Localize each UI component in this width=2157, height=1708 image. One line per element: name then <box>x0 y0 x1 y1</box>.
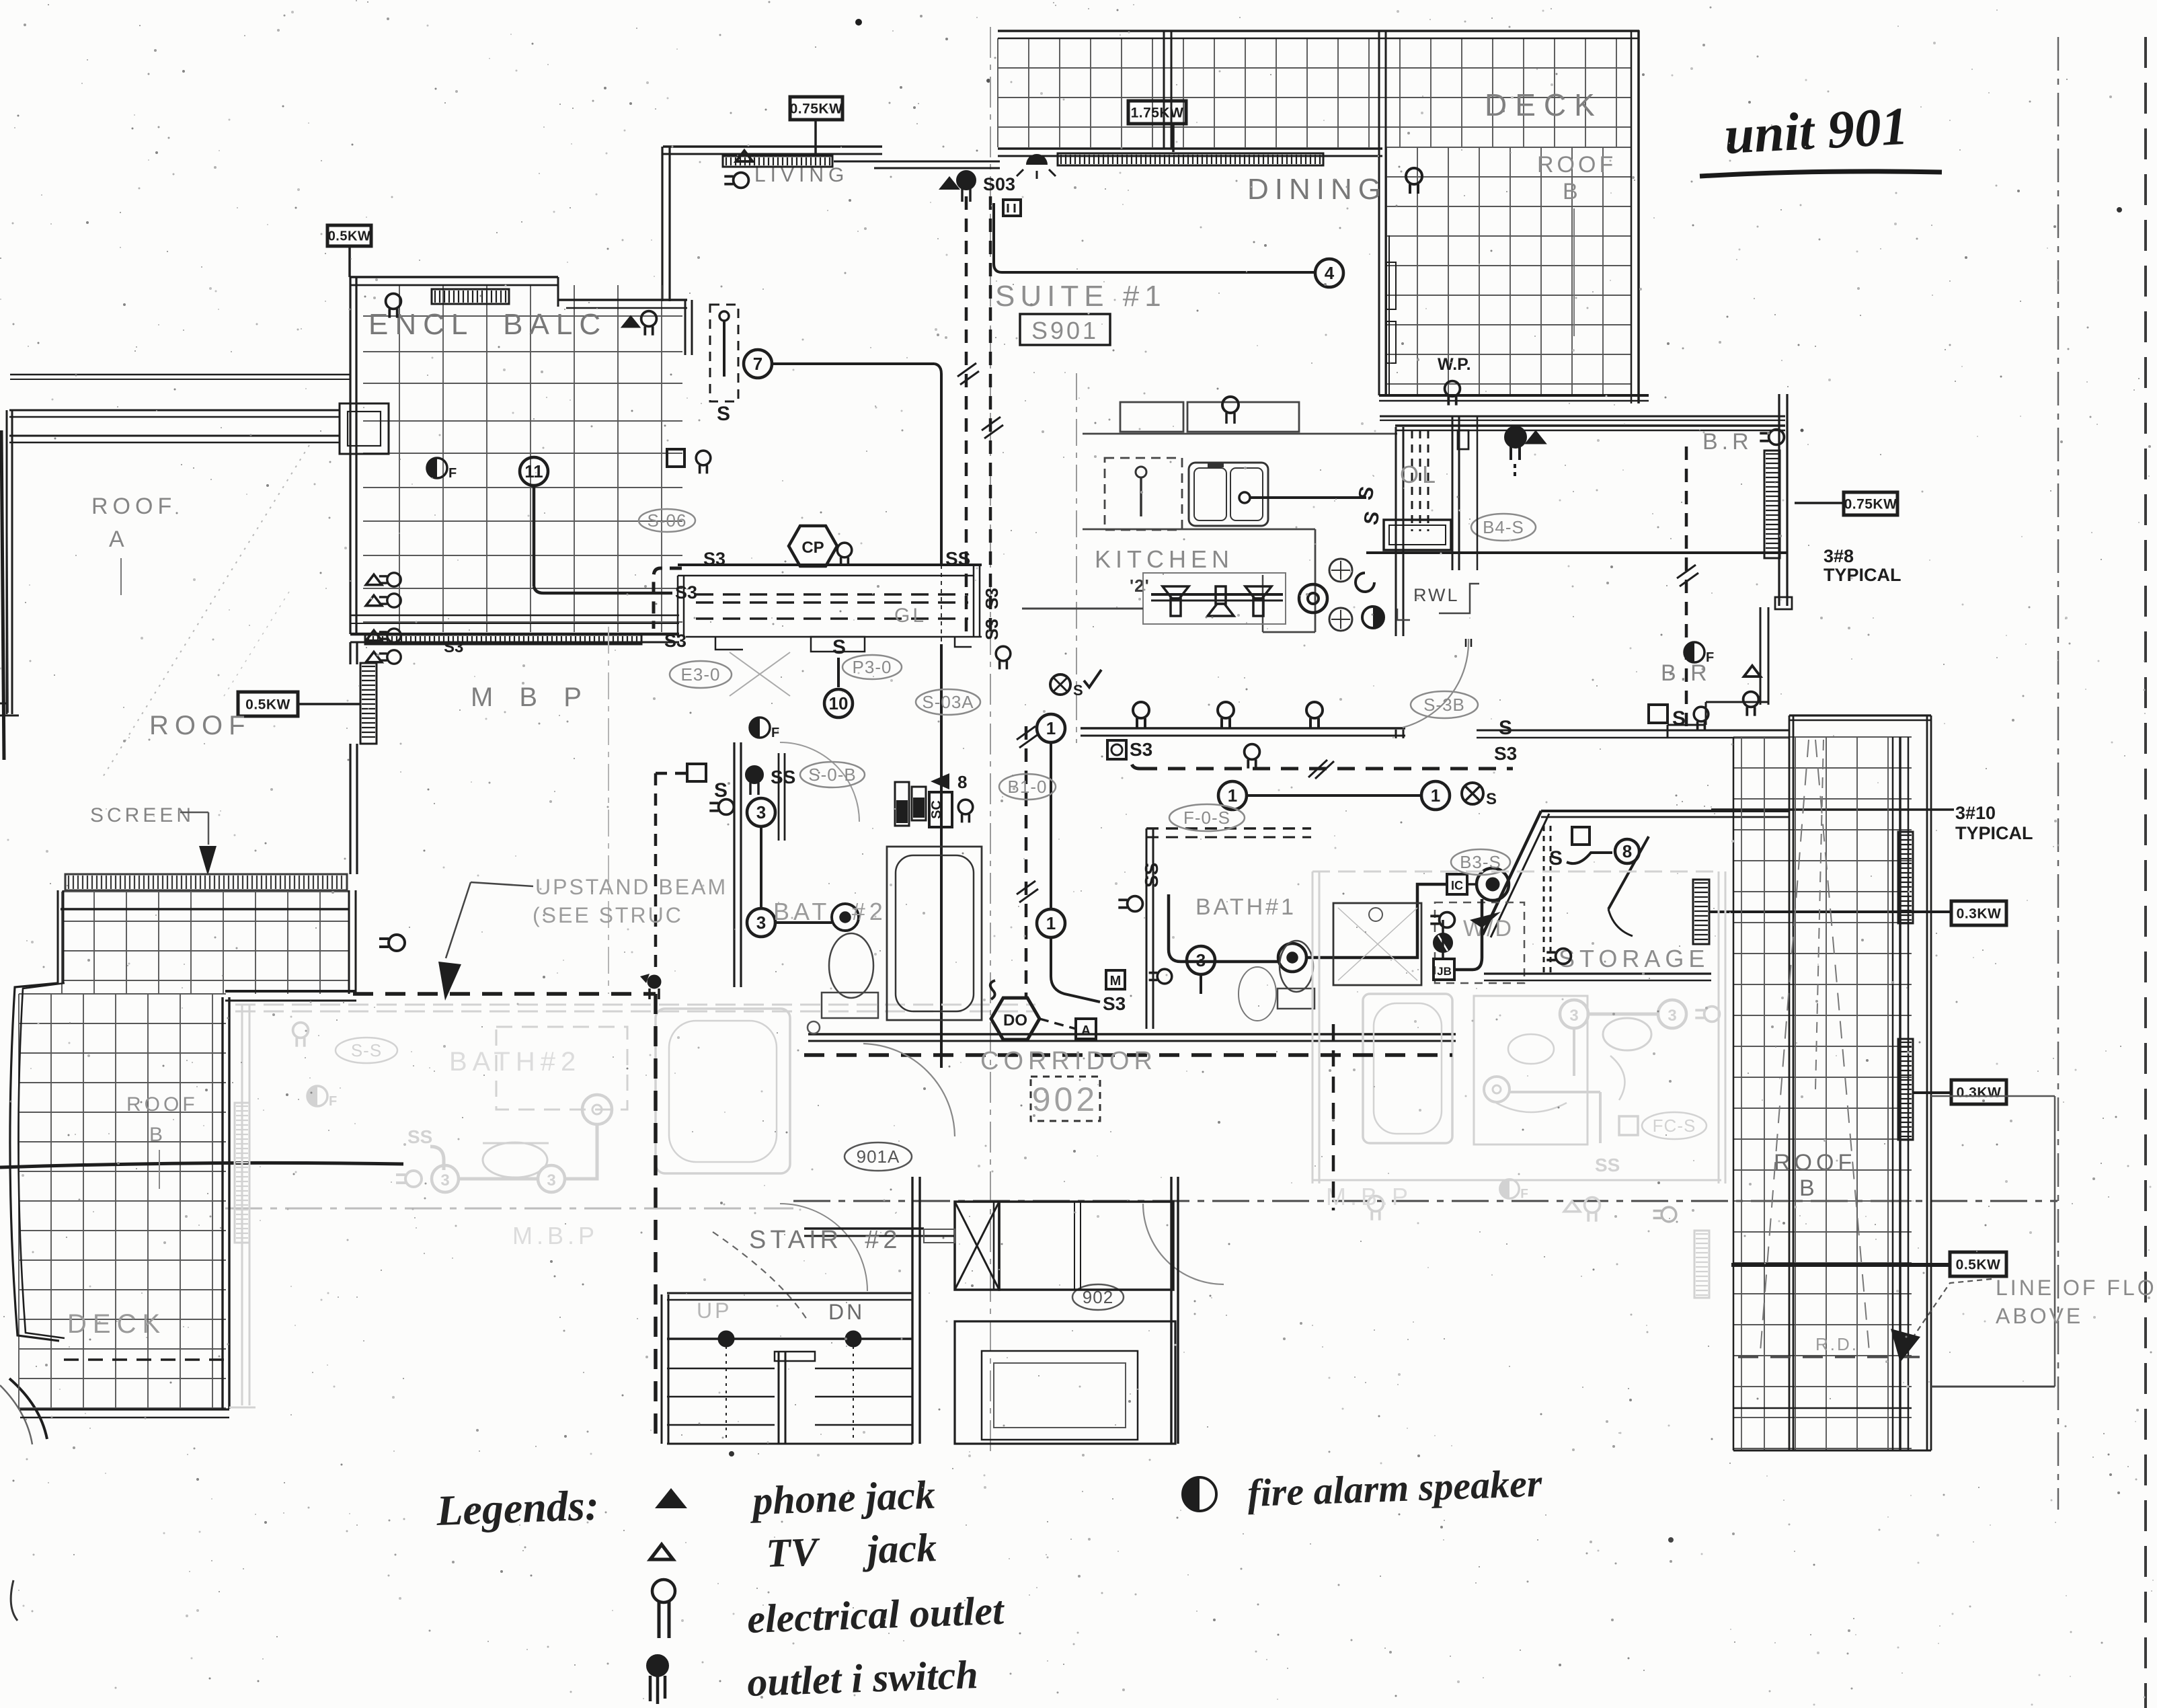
svg-text:IC: IC <box>1451 879 1463 892</box>
svg-text:SS: SS <box>1595 1155 1620 1175</box>
svg-text:S3: S3 <box>1103 993 1126 1014</box>
svg-text:3: 3 <box>756 802 766 822</box>
svg-text:0.5KW: 0.5KW <box>245 697 290 713</box>
svg-text:S: S <box>1073 682 1083 699</box>
svg-text:S: S <box>1486 790 1497 808</box>
svg-text:ENCL BALC: ENCL BALC <box>368 308 607 341</box>
svg-text:ROOF: ROOF <box>91 494 176 519</box>
svg-text:901A: 901A <box>857 1147 900 1167</box>
svg-text:ROOF: ROOF <box>1774 1150 1856 1175</box>
svg-text:S-03A: S-03A <box>922 692 974 712</box>
svg-text:S-3B: S-3B <box>1423 695 1465 715</box>
svg-text:TYPICAL: TYPICAL <box>1823 565 1901 585</box>
svg-text:902: 902 <box>1032 1081 1098 1118</box>
svg-text:0.5KW: 0.5KW <box>1956 1257 2001 1273</box>
svg-text:S3: S3 <box>982 588 1002 609</box>
svg-text:SS: SS <box>771 767 795 787</box>
svg-text:B: B <box>149 1124 163 1146</box>
svg-text:0.3KW: 0.3KW <box>1957 1085 2002 1101</box>
svg-text:M: M <box>1110 974 1122 988</box>
svg-text:11: 11 <box>524 461 543 481</box>
svg-text:BAT #2: BAT #2 <box>773 898 887 925</box>
svg-text:S-06: S-06 <box>648 510 687 531</box>
svg-text:B4-S: B4-S <box>1483 517 1524 537</box>
svg-text:KITCHEN: KITCHEN <box>1095 545 1234 573</box>
svg-text:TV jack: TV jack <box>765 1525 937 1576</box>
svg-text:CP: CP <box>801 539 824 557</box>
svg-text:BATH#1: BATH#1 <box>1195 894 1296 920</box>
svg-text:B3-S: B3-S <box>1460 852 1501 872</box>
svg-text:1: 1 <box>1046 718 1056 738</box>
svg-text:S3: S3 <box>703 549 725 569</box>
svg-text:S3: S3 <box>1130 739 1152 760</box>
svg-text:8: 8 <box>957 772 967 792</box>
svg-text:TYPICAL: TYPICAL <box>1955 823 2033 843</box>
svg-text:S3: S3 <box>1494 743 1517 764</box>
svg-text:B: B <box>1563 179 1578 204</box>
svg-text:SUITE #1: SUITE #1 <box>995 280 1167 313</box>
svg-text:1: 1 <box>1046 913 1056 933</box>
svg-text:ROOF: ROOF <box>1537 152 1616 178</box>
svg-text:0.3KW: 0.3KW <box>1957 906 2002 922</box>
svg-text:S3: S3 <box>444 638 463 656</box>
svg-text:S: S <box>1672 707 1686 730</box>
svg-text:SCREEN: SCREEN <box>90 804 194 826</box>
svg-text:B: B <box>1799 1175 1815 1201</box>
svg-text:UP: UP <box>697 1298 732 1323</box>
svg-text:E3-0: E3-0 <box>681 664 721 685</box>
svg-text:DECK: DECK <box>67 1309 166 1339</box>
svg-text:1: 1 <box>1431 785 1440 806</box>
svg-text:OL: OL <box>1400 461 1439 488</box>
svg-text:ROOF: ROOF <box>149 711 251 740</box>
svg-text:S-S: S-S <box>351 1040 382 1060</box>
svg-text:3: 3 <box>1196 950 1206 970</box>
svg-text:W.P.: W.P. <box>1438 355 1471 374</box>
svg-text:3: 3 <box>756 913 766 933</box>
svg-text:M.B.P: M.B.P <box>512 1222 598 1249</box>
svg-text:P3-0: P3-0 <box>853 657 892 677</box>
svg-text:SS: SS <box>945 548 970 569</box>
svg-text:S3: S3 <box>664 631 687 651</box>
svg-text:LINE OF FLOO: LINE OF FLOO <box>1996 1276 2157 1300</box>
svg-text:SS: SS <box>1141 863 1162 888</box>
svg-text:3: 3 <box>547 1171 555 1190</box>
svg-text:LIVING: LIVING <box>754 164 849 186</box>
svg-text:ABOVE: ABOVE <box>1996 1304 2083 1328</box>
svg-text:SC: SC <box>929 800 944 819</box>
svg-text:S: S <box>717 403 730 425</box>
svg-text:'2': '2' <box>1130 576 1150 596</box>
svg-text:A: A <box>109 527 124 552</box>
svg-text:S3: S3 <box>982 619 1002 640</box>
svg-text:F: F <box>329 1094 337 1109</box>
svg-text:S-0-B: S-0-B <box>808 765 856 785</box>
svg-text:1: 1 <box>1228 785 1237 806</box>
svg-text:S901: S901 <box>1031 317 1099 344</box>
svg-text:F: F <box>1520 1187 1528 1201</box>
svg-text:10: 10 <box>829 693 849 713</box>
svg-text:CORRIDOR: CORRIDOR <box>980 1047 1157 1075</box>
svg-text:3#10: 3#10 <box>1955 803 1996 823</box>
svg-text:0.75KW: 0.75KW <box>1844 497 1897 512</box>
svg-text:DINING: DINING <box>1247 173 1387 206</box>
svg-text:unit 901: unit 901 <box>1723 97 1910 165</box>
svg-text:DECK: DECK <box>1485 87 1603 122</box>
svg-text:3: 3 <box>440 1171 449 1190</box>
svg-text:7: 7 <box>753 354 762 374</box>
svg-text:outlet i switch: outlet i switch <box>746 1652 978 1705</box>
svg-text:DN: DN <box>828 1300 865 1324</box>
svg-text:S: S <box>1549 847 1563 869</box>
svg-text:SS: SS <box>407 1126 432 1147</box>
svg-text:S: S <box>832 636 846 658</box>
svg-text:M.B.P: M.B.P <box>1326 1183 1412 1210</box>
svg-text:BATH#2: BATH#2 <box>449 1047 581 1077</box>
svg-text:3#8: 3#8 <box>1823 546 1854 566</box>
svg-text:R.D.: R.D. <box>1815 1334 1858 1354</box>
svg-text:STORAGE: STORAGE <box>1559 945 1709 972</box>
svg-text:UPSTAND BEAM: UPSTAND BEAM <box>535 875 728 899</box>
svg-text:3: 3 <box>1668 1007 1676 1025</box>
svg-text:(SEE STRUC: (SEE STRUC <box>533 903 683 927</box>
svg-text:1.75KW: 1.75KW <box>1131 106 1184 121</box>
svg-text:F-0-S: F-0-S <box>1183 808 1230 828</box>
svg-text:A: A <box>1081 1023 1091 1038</box>
svg-text:S03: S03 <box>983 174 1015 194</box>
svg-text:ROOF: ROOF <box>126 1093 198 1116</box>
svg-text:phone jack: phone jack <box>748 1473 936 1524</box>
svg-text:DO: DO <box>1003 1011 1027 1030</box>
svg-text:Legends:: Legends: <box>435 1481 600 1535</box>
svg-text:4: 4 <box>1325 263 1335 283</box>
svg-text:RWL: RWL <box>1413 585 1460 605</box>
svg-text:JB: JB <box>1437 965 1452 978</box>
svg-text:B.R: B.R <box>1661 660 1711 686</box>
svg-text:B1-0: B1-0 <box>1008 777 1048 797</box>
svg-text:electrical outlet: electrical outlet <box>746 1588 1006 1641</box>
svg-text:M B P: M B P <box>471 683 591 712</box>
svg-text:S: S <box>1499 717 1512 739</box>
svg-text:FC-S: FC-S <box>1653 1116 1696 1136</box>
svg-text:GL: GL <box>894 605 927 627</box>
svg-text:0.5KW: 0.5KW <box>328 229 371 244</box>
svg-text:0.75KW: 0.75KW <box>790 102 843 117</box>
svg-text:STAIR #2: STAIR #2 <box>749 1226 901 1254</box>
svg-text:3: 3 <box>1569 1007 1578 1025</box>
svg-text:F: F <box>448 466 457 481</box>
svg-text:8: 8 <box>1622 841 1632 861</box>
svg-text:F: F <box>771 726 779 740</box>
svg-text:B.R: B.R <box>1702 429 1753 455</box>
